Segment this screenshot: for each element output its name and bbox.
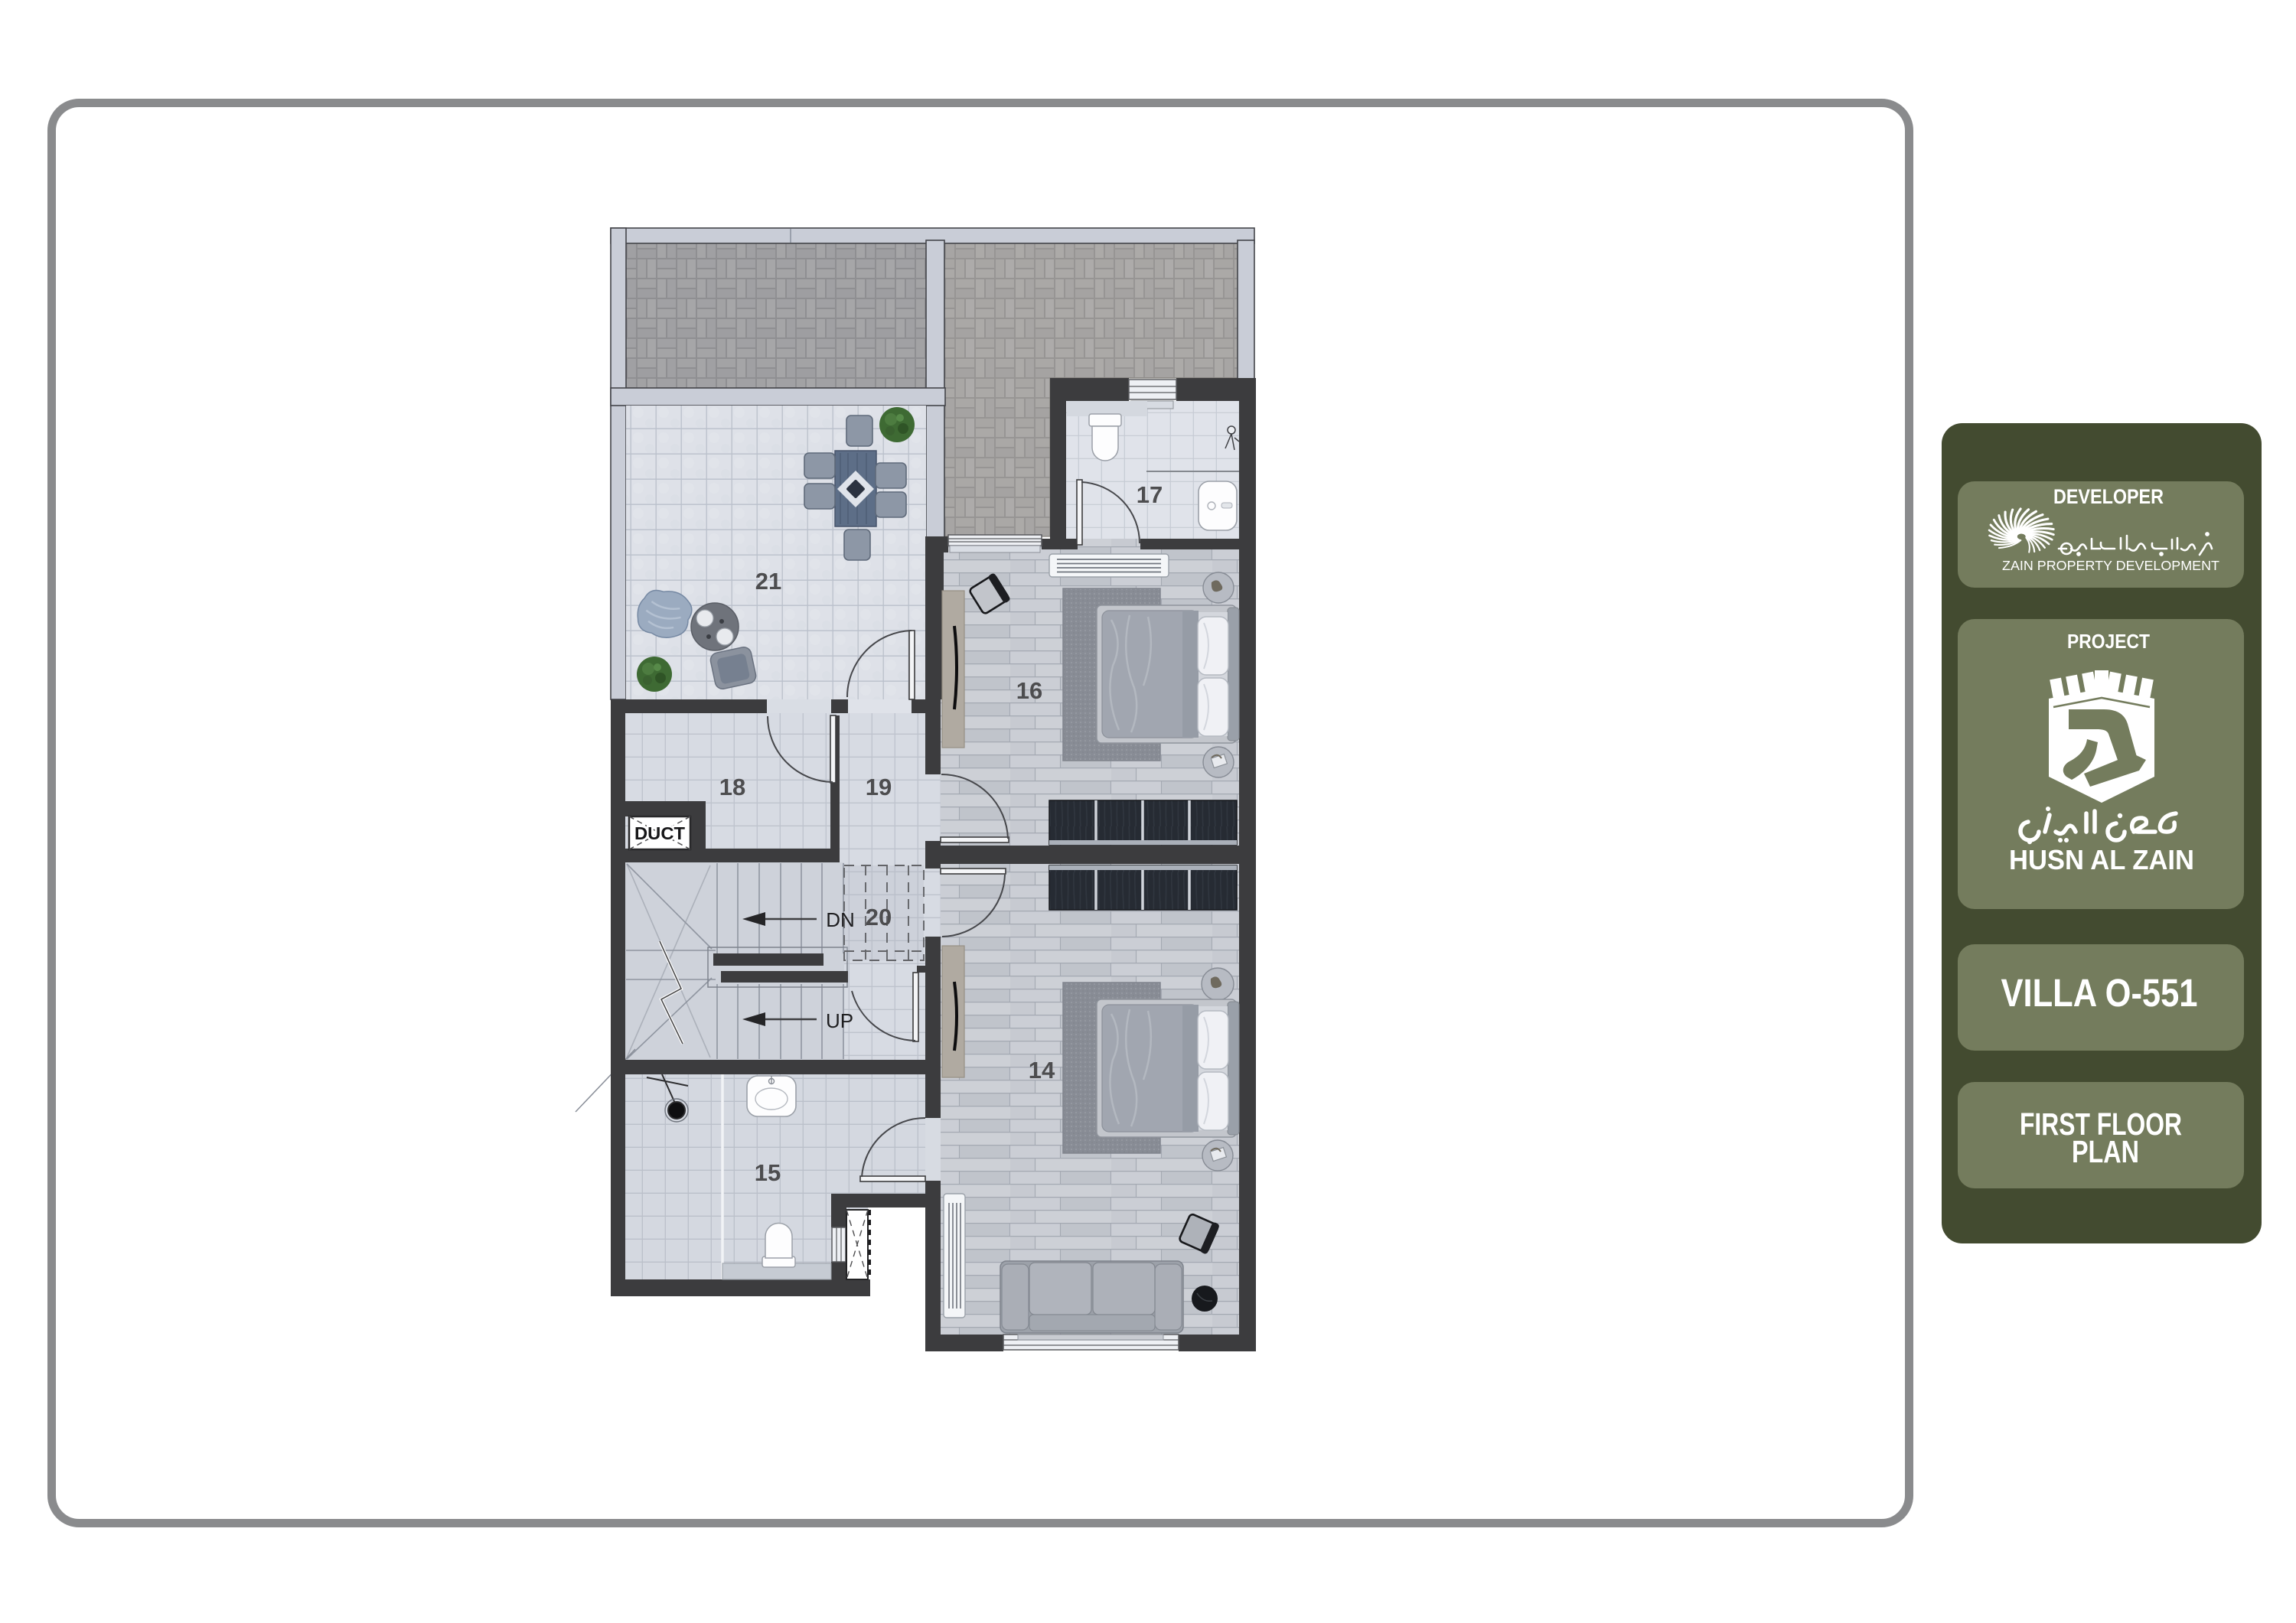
svg-text:14: 14 — [1029, 1057, 1055, 1084]
svg-text:ZAIN PROPERTY DEVELOPMENT: ZAIN PROPERTY DEVELOPMENT — [2002, 558, 2219, 573]
svg-text:DN: DN — [826, 908, 855, 931]
svg-text:19: 19 — [866, 774, 892, 800]
svg-text:DUCT: DUCT — [634, 823, 685, 843]
svg-text:DEVELOPER: DEVELOPER — [2053, 485, 2164, 508]
svg-text:17: 17 — [1137, 481, 1163, 508]
svg-text:16: 16 — [1016, 677, 1042, 704]
svg-text:21: 21 — [755, 568, 781, 595]
svg-text:20: 20 — [866, 904, 892, 930]
svg-text:HUSN AL ZAIN: HUSN AL ZAIN — [2009, 844, 2194, 875]
svg-text:PLAN: PLAN — [2072, 1134, 2139, 1169]
svg-text:UP: UP — [826, 1009, 853, 1032]
svg-text:18: 18 — [719, 774, 745, 800]
svg-text:PROJECT: PROJECT — [2067, 630, 2150, 653]
svg-text:15: 15 — [755, 1159, 781, 1186]
svg-text:VILLA O-551: VILLA O-551 — [2001, 971, 2198, 1015]
